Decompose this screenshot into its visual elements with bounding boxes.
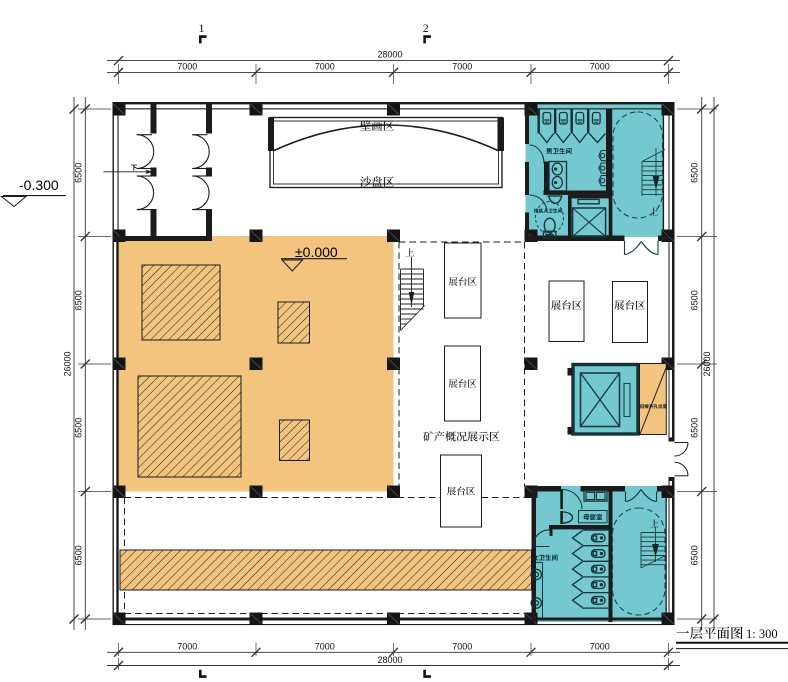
svg-text:7000: 7000 [452, 642, 472, 652]
svg-text:±0.000: ±0.000 [295, 244, 338, 260]
svg-text:26000: 26000 [63, 351, 73, 376]
svg-text:6500: 6500 [690, 545, 700, 565]
svg-text:7000: 7000 [452, 62, 472, 72]
svg-text:7000: 7000 [590, 642, 610, 652]
svg-text:6500: 6500 [73, 545, 83, 565]
svg-text:6500: 6500 [73, 163, 83, 183]
svg-text:28000: 28000 [377, 50, 402, 60]
svg-text:28000: 28000 [377, 655, 402, 665]
svg-text:6500: 6500 [73, 290, 83, 310]
svg-text:6500: 6500 [73, 418, 83, 438]
svg-text:1: 1 [199, 21, 205, 35]
svg-text:6500: 6500 [690, 418, 700, 438]
svg-text:1: 300: 1: 300 [746, 627, 778, 641]
svg-text:7000: 7000 [315, 62, 335, 72]
svg-text:-0.300: -0.300 [19, 177, 59, 193]
svg-text:7000: 7000 [315, 642, 335, 652]
svg-text:7000: 7000 [590, 62, 610, 72]
svg-text:6500: 6500 [690, 290, 700, 310]
svg-text:6500: 6500 [690, 163, 700, 183]
svg-text:26000: 26000 [702, 351, 712, 376]
svg-text:7000: 7000 [177, 642, 197, 652]
svg-text:2: 2 [423, 21, 429, 35]
svg-text:7000: 7000 [177, 62, 197, 72]
